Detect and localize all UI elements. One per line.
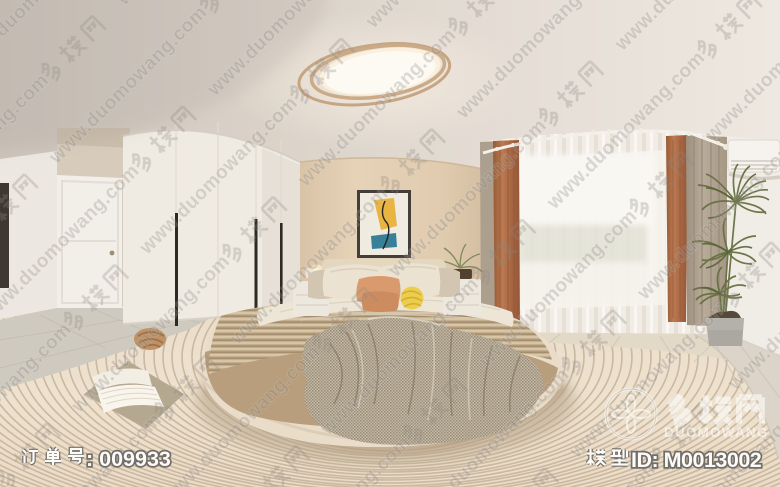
svg-text:DUOMOWANG: DUOMOWANG bbox=[664, 425, 769, 440]
svg-text:: 009933: : 009933 bbox=[86, 447, 171, 471]
svg-text:ID: M0013002: ID: M0013002 bbox=[631, 448, 762, 472]
